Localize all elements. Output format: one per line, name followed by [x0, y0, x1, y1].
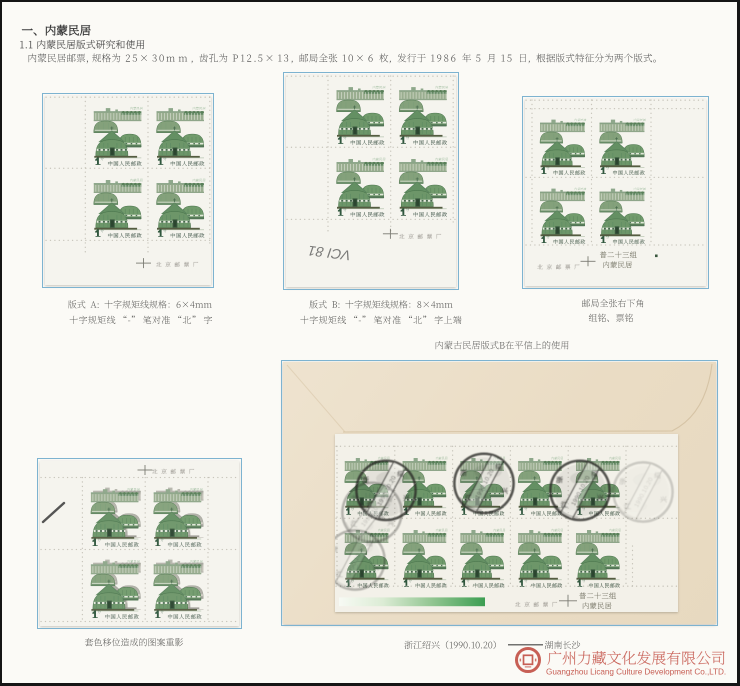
- svg-text:VCI 81: VCI 81: [305, 243, 353, 264]
- svg-text:Guangzhou Licang Culture Devel: Guangzhou Licang Culture Development Co.…: [546, 667, 726, 676]
